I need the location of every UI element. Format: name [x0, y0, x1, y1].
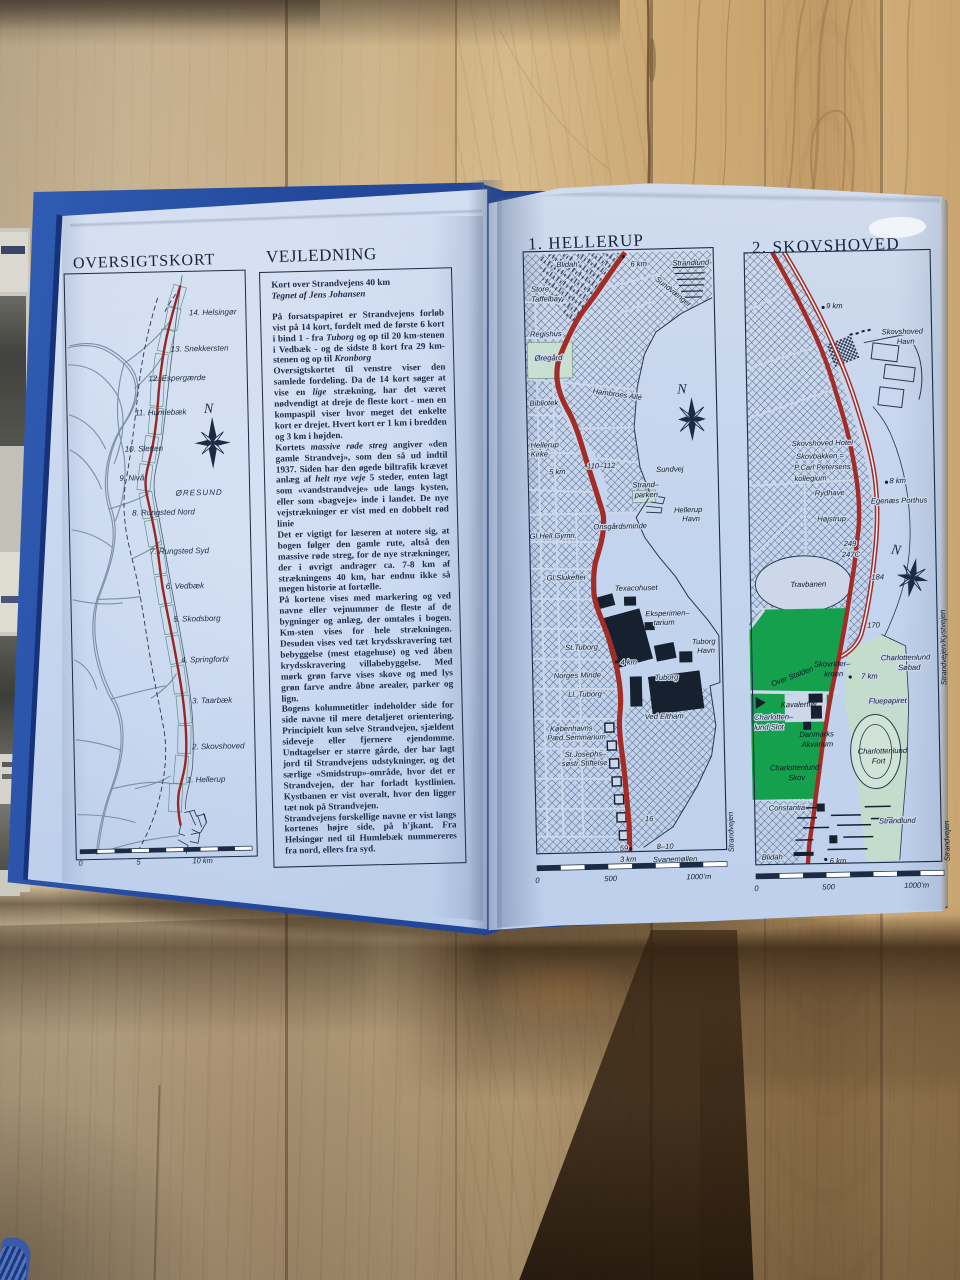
- svg-text:6 km: 6 km: [830, 856, 847, 865]
- svg-text:Hellerup: Hellerup: [530, 440, 558, 450]
- svg-text:6. Vedbæk: 6. Vedbæk: [166, 581, 206, 591]
- svg-text:Fluepapiret: Fluepapiret: [869, 696, 908, 706]
- svg-text:14. Helsingør: 14. Helsingør: [189, 307, 237, 317]
- svg-text:Strandlund: Strandlund: [879, 816, 917, 826]
- svg-text:11. Humlebæk: 11. Humlebæk: [135, 407, 188, 417]
- svg-text:Strandvejen: Strandvejen: [726, 812, 736, 853]
- svg-text:Fort: Fort: [872, 756, 887, 765]
- svg-text:0: 0: [754, 884, 759, 893]
- svg-text:170: 170: [867, 620, 881, 629]
- svg-text:Charlottenlund: Charlottenlund: [881, 652, 931, 662]
- svg-text:Gl.Slukefter: Gl.Slukefter: [546, 573, 586, 583]
- svg-text:110–112: 110–112: [587, 461, 616, 471]
- svg-text:Danmarks: Danmarks: [799, 729, 834, 739]
- svg-text:tarium: tarium: [653, 618, 674, 627]
- svg-text:Onsgårdsminde: Onsgårdsminde: [593, 521, 647, 531]
- svg-text:Charlottenlund: Charlottenlund: [770, 763, 820, 773]
- svg-text:ØRESUND: ØRESUND: [175, 488, 223, 498]
- svg-text:Kirke: Kirke: [531, 449, 549, 458]
- svg-text:2. Skovshoved: 2. Skovshoved: [191, 741, 245, 751]
- svg-text:Strandvejen/Kystvejen: Strandvejen/Kystvejen: [938, 610, 948, 686]
- svg-text:Sundvej: Sundvej: [656, 464, 684, 474]
- svg-text:9 km: 9 km: [826, 301, 843, 310]
- svg-text:Travbanen: Travbanen: [790, 579, 826, 589]
- svg-text:kroen: kroen: [824, 669, 843, 678]
- svg-text:6 km: 6 km: [630, 259, 647, 268]
- svg-text:lund Slot: lund Slot: [754, 722, 785, 732]
- svg-text:500: 500: [822, 882, 836, 891]
- svg-text:1000’m: 1000’m: [904, 881, 929, 890]
- svg-text:Ved Eltham: Ved Eltham: [645, 711, 684, 721]
- svg-text:kollegium: kollegium: [794, 473, 826, 483]
- svg-text:8. Rungsted Nord: 8. Rungsted Nord: [132, 507, 195, 517]
- svg-text:Ll. Tuborg: Ll. Tuborg: [568, 689, 603, 699]
- svg-text:16: 16: [645, 814, 654, 823]
- svg-text:500: 500: [604, 874, 618, 883]
- svg-text:8 km: 8 km: [889, 476, 906, 485]
- svg-text:Havn: Havn: [682, 514, 700, 523]
- svg-text:5. Skodsborg: 5. Skodsborg: [173, 614, 221, 624]
- svg-text:Constantia: Constantia: [769, 803, 805, 813]
- svg-text:Charlottenlund: Charlottenlund: [858, 746, 908, 756]
- svg-text:Skovshoved: Skovshoved: [882, 327, 924, 337]
- svg-text:7. Rungsted Syd: 7. Rungsted Syd: [150, 546, 210, 556]
- svg-text:N: N: [203, 402, 214, 417]
- svg-text:247C: 247C: [841, 550, 861, 559]
- svg-text:Søbad: Søbad: [898, 663, 921, 672]
- svg-text:søstr.Stiftelse: søstr.Stiftelse: [562, 758, 608, 768]
- svg-text:Blidah: Blidah: [556, 260, 577, 269]
- svg-text:9. Nivå: 9. Nivå: [119, 473, 145, 483]
- svg-text:Strandvejen: Strandvejen: [942, 821, 952, 862]
- svg-text:Havn: Havn: [897, 337, 915, 346]
- svg-text:Egenæs Porthus: Egenæs Porthus: [871, 495, 928, 505]
- svg-text:Akvarium: Akvarium: [800, 739, 833, 749]
- svg-text:8–10: 8–10: [657, 842, 675, 851]
- svg-text:10 km: 10 km: [192, 856, 213, 865]
- svg-text:N: N: [676, 382, 687, 397]
- svg-text:Skovrider–: Skovrider–: [814, 659, 851, 669]
- svg-text:Store: Store: [531, 284, 549, 293]
- svg-text:Taffelbay: Taffelbay: [531, 294, 563, 304]
- svg-text:Strand–: Strand–: [632, 480, 660, 490]
- svg-text:Pæd.Seminarium: Pæd.Seminarium: [547, 732, 606, 742]
- svg-text:7 km: 7 km: [861, 671, 878, 680]
- svg-text:Skovshoved Hotel: Skovshoved Hotel: [792, 438, 854, 448]
- svg-text:184: 184: [871, 572, 884, 581]
- svg-text:12. Espergærde: 12. Espergærde: [148, 373, 206, 383]
- svg-text:Skovbakken =: Skovbakken =: [796, 451, 845, 461]
- svg-text:4 km: 4 km: [620, 657, 637, 666]
- svg-text:P.Carl Petersens: P.Carl Petersens: [794, 462, 851, 472]
- svg-text:3 km: 3 km: [620, 855, 637, 864]
- svg-text:Gl.Hell.Gymn.: Gl.Hell.Gymn.: [529, 531, 576, 541]
- svg-text:Højstrup: Højstrup: [817, 514, 846, 524]
- svg-text:1. Hellerup: 1. Hellerup: [187, 775, 226, 785]
- svg-text:N: N: [889, 542, 903, 559]
- svg-text:St.Tuborg: St.Tuborg: [565, 642, 599, 652]
- svg-text:Charlotten–: Charlotten–: [754, 712, 794, 722]
- svg-text:5 km: 5 km: [549, 467, 566, 476]
- svg-text:Skov: Skov: [788, 773, 806, 782]
- svg-text:Texacohuset: Texacohuset: [615, 583, 659, 593]
- svg-text:Norges Minde: Norges Minde: [554, 670, 601, 680]
- svg-text:Tuborg: Tuborg: [655, 673, 679, 683]
- svg-text:13. Snekkersten: 13. Snekkersten: [171, 344, 230, 354]
- svg-text:0: 0: [535, 876, 540, 885]
- svg-text:249: 249: [843, 539, 858, 548]
- svg-text:1000’m: 1000’m: [686, 872, 711, 882]
- svg-text:Regishus: Regishus: [530, 329, 562, 339]
- svg-text:Rydhave: Rydhave: [815, 488, 845, 498]
- svg-text:3. Taarbæk: 3. Taarbæk: [192, 696, 233, 706]
- svg-text:Strandlund: Strandlund: [672, 258, 710, 268]
- svg-text:Kavalerfløj: Kavalerfløj: [781, 700, 817, 710]
- svg-text:Havn: Havn: [697, 646, 715, 655]
- svg-text:parken: parken: [634, 490, 658, 500]
- svg-text:4. Springforbi: 4. Springforbi: [181, 655, 229, 665]
- svg-text:10. Sletten: 10. Sletten: [125, 444, 164, 454]
- svg-text:Bibliotek: Bibliotek: [529, 398, 559, 408]
- svg-text:Øregård: Øregård: [533, 353, 563, 363]
- svg-text:Blidah: Blidah: [762, 852, 783, 861]
